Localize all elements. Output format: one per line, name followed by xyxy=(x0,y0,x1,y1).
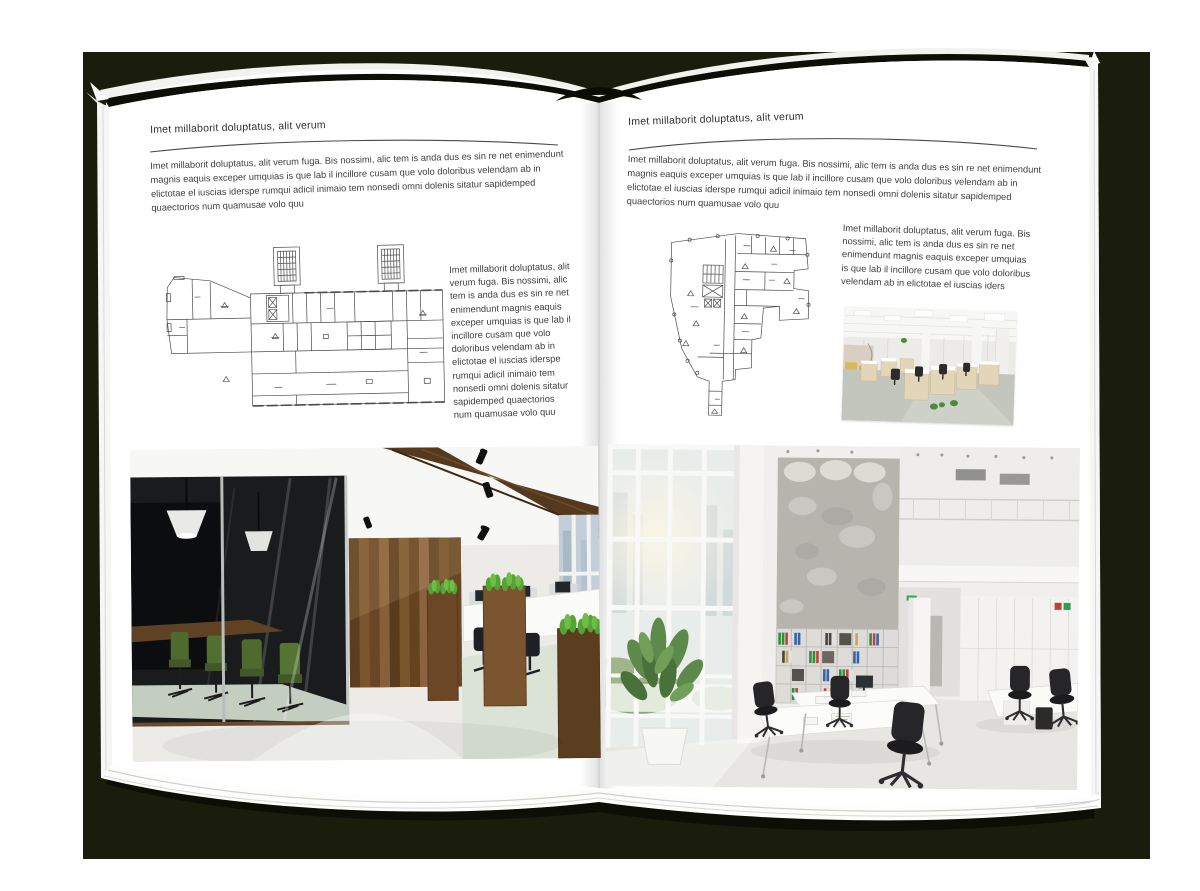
right-floor-plan xyxy=(644,218,840,427)
small-office-photo xyxy=(841,306,1016,425)
right-office-photo xyxy=(605,444,1080,790)
left-page-caption: Imet millaborit doluptatus, alit verum f… xyxy=(449,260,575,422)
right-page-intro: Imet millaborit doluptatus, alit verum f… xyxy=(627,153,1042,220)
mezzanine xyxy=(899,447,1080,583)
concrete-wall xyxy=(776,458,899,630)
right-header-rule xyxy=(627,130,1039,154)
left-office-photo xyxy=(130,446,601,762)
plan-micro-labels xyxy=(689,245,806,401)
left-floor-plan xyxy=(153,222,449,416)
corridor xyxy=(723,235,736,379)
meeting-room xyxy=(130,476,349,727)
corridor xyxy=(252,371,408,396)
stair-tower xyxy=(273,247,300,294)
stair-tower xyxy=(377,245,404,292)
magazine-mockup: Imet millaborit doluptatus, alit verum I… xyxy=(0,0,1200,891)
right-page-caption: Imet millaborit doluptatus, alit verum f… xyxy=(841,222,1035,294)
plan-micro-labels xyxy=(178,292,428,389)
stair-core xyxy=(702,265,723,307)
